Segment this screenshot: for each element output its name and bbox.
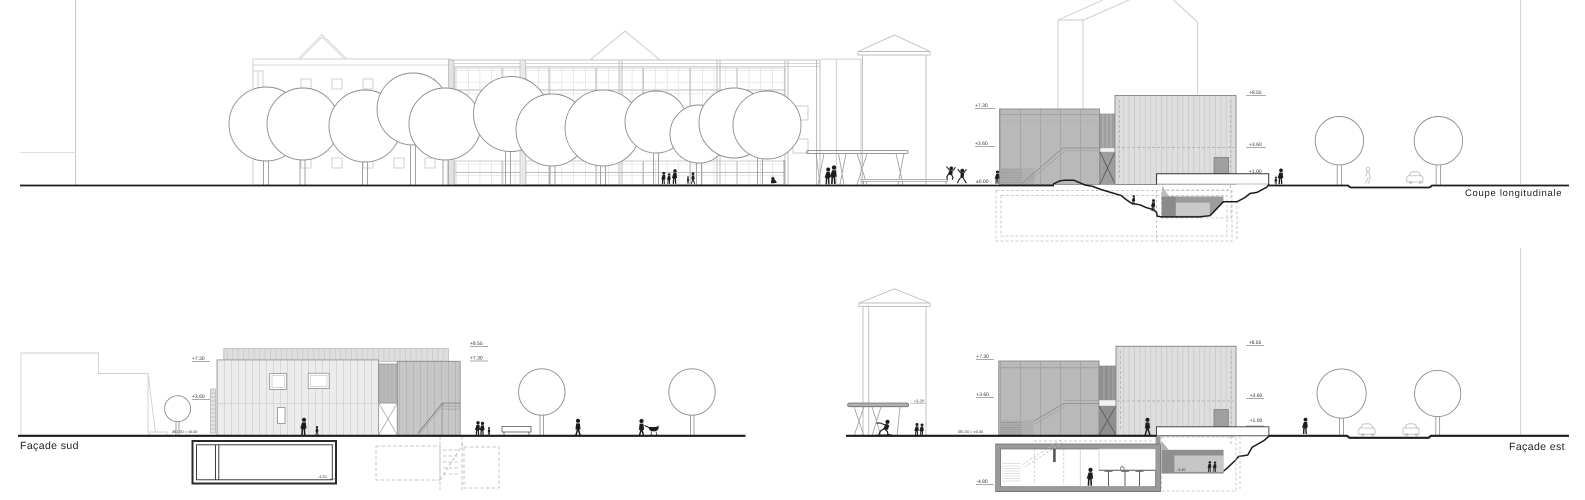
svg-text:361.50 = ±0.00: 361.50 = ±0.00 [172, 430, 197, 434]
svg-text:361.50 = ±0.00: 361.50 = ±0.00 [958, 430, 983, 434]
svg-text:+7.30: +7.30 [470, 356, 483, 362]
svg-text:-4.20: -4.20 [318, 475, 327, 479]
svg-text:+3.60: +3.60 [1249, 142, 1262, 148]
svg-text:Coupe longitudinale: Coupe longitudinale [1465, 188, 1562, 199]
svg-text:+8.55: +8.55 [470, 341, 483, 347]
svg-text:+3.60: +3.60 [975, 141, 988, 147]
svg-text:-3.45: -3.45 [1177, 468, 1186, 472]
svg-text:+7.30: +7.30 [976, 354, 989, 360]
svg-text:+8.55: +8.55 [1249, 90, 1262, 96]
svg-text:-4.80: -4.80 [976, 479, 988, 485]
svg-text:+1.00: +1.00 [1249, 169, 1262, 175]
svg-text:+3.20: +3.20 [914, 398, 925, 403]
svg-text:+8.55: +8.55 [1249, 340, 1262, 346]
svg-text:±0.00: ±0.00 [976, 179, 989, 185]
svg-text:+7.30: +7.30 [192, 356, 205, 362]
svg-text:+1.00: +1.00 [1250, 418, 1263, 424]
svg-text:Façade est: Façade est [1509, 441, 1565, 453]
svg-text:+3.60: +3.60 [192, 394, 205, 400]
svg-text:+7.30: +7.30 [975, 103, 988, 109]
svg-text:+3.60: +3.60 [1250, 393, 1263, 399]
svg-text:+3.60: +3.60 [976, 392, 989, 398]
svg-text:Façade sud: Façade sud [20, 440, 79, 452]
